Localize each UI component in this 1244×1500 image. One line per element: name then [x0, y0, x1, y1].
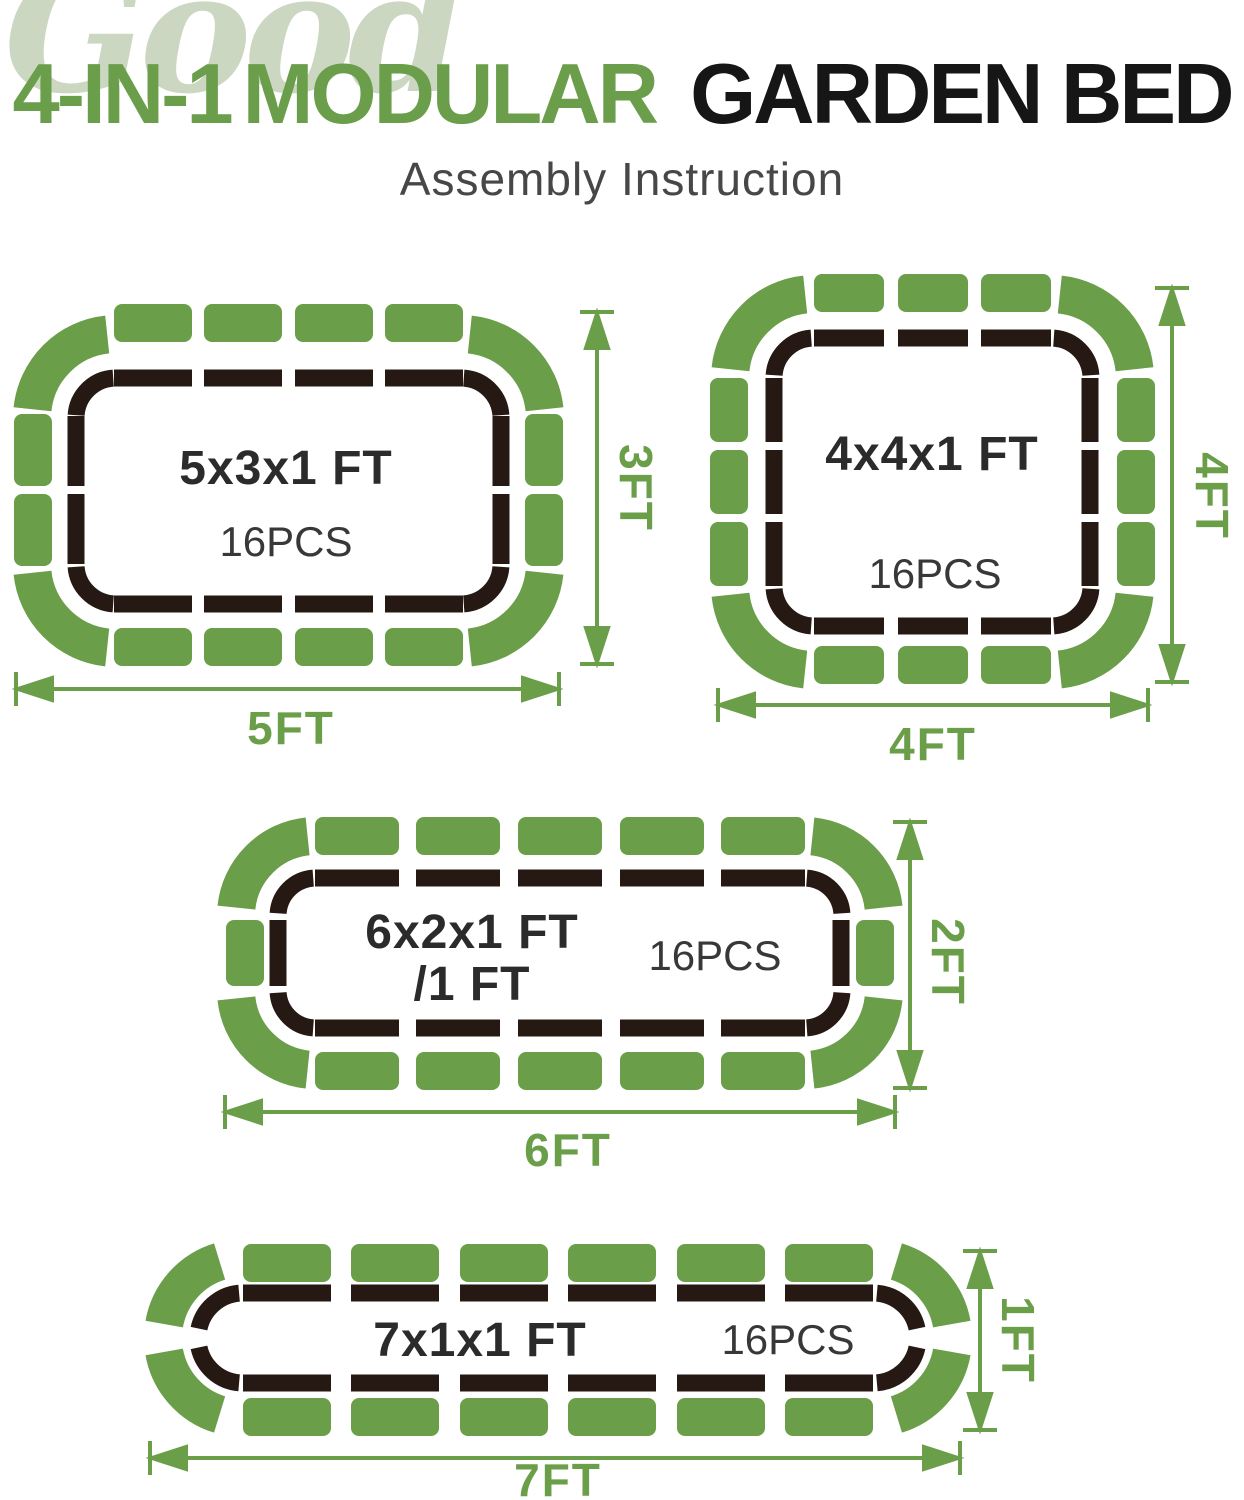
height-dimension-arrow	[893, 822, 927, 1088]
pieces-count: 16PCS	[868, 550, 1001, 597]
arrowhead-up	[969, 1253, 991, 1287]
corner-panel	[33, 573, 108, 648]
corner-panel	[812, 998, 883, 1069]
title-modular: MODULAR	[243, 48, 656, 142]
arrowhead-up	[1161, 290, 1183, 324]
arrowhead-down	[586, 628, 608, 662]
corner-panel	[236, 998, 307, 1069]
panel-bottom	[114, 628, 192, 666]
panel-top	[351, 1244, 439, 1282]
size-label: 5x3x1 FT	[179, 442, 392, 495]
panel-left	[710, 522, 748, 586]
diagram-bed-5x3: 5x3x1 FT 16PCS 3FT 5FT	[8, 298, 668, 758]
panel-left	[14, 494, 52, 566]
panel-bottom	[518, 1052, 602, 1090]
panel-bottom	[204, 628, 282, 666]
panel-top	[677, 1244, 765, 1282]
arrowhead-down	[969, 1394, 991, 1428]
pieces-count: 16PCS	[648, 932, 781, 979]
panel-bottom	[315, 1052, 399, 1090]
panel-right	[856, 920, 894, 986]
corner-panel	[470, 573, 545, 648]
height-dimension-arrow	[963, 1251, 997, 1430]
corner-panel	[812, 836, 883, 907]
assembly-instruction-sheet: Good 4-IN-1 MODULAR GARDEN BED Assembly …	[0, 0, 1244, 1500]
arrowhead-left	[720, 694, 754, 716]
diagram-bed-4x4: 4x4x1 FT 16PCS 4FT 4FT	[690, 268, 1244, 770]
panel-top	[568, 1244, 656, 1282]
height-dimension-label: 3FT	[610, 444, 662, 532]
panel-bottom	[243, 1398, 331, 1436]
panel-top	[721, 817, 805, 855]
bed-diagram-7x1: 7x1x1 FT 16PCS 1FT 7FT	[128, 1238, 1138, 1500]
panel-bottom	[568, 1398, 656, 1436]
size-label-line2: /1 FT	[413, 958, 530, 1011]
panel-top	[620, 817, 704, 855]
panel-right	[525, 414, 563, 486]
panel-top	[385, 304, 463, 342]
panel-top	[416, 817, 500, 855]
arrowhead-down	[899, 1052, 921, 1086]
diagram-bed-6x2: 6x2x1 FT /1 FT 16PCS 2FT 6FT	[210, 812, 1010, 1180]
corner-panel	[1060, 595, 1135, 670]
arrowhead-left	[18, 678, 52, 700]
size-label: 7x1x1 FT	[373, 1314, 586, 1367]
corner-panel	[470, 335, 545, 410]
panel-bottom	[785, 1398, 873, 1436]
diagram-bed-7x1: 7x1x1 FT 16PCS 1FT 7FT	[128, 1238, 1138, 1500]
height-dimension-label: 1FT	[992, 1296, 1044, 1384]
panel-bottom	[981, 646, 1051, 684]
arrowhead-right	[924, 1447, 958, 1469]
size-label: 6x2x1 FT	[365, 906, 578, 959]
panel-left	[14, 414, 52, 486]
panel-bottom	[351, 1398, 439, 1436]
panel-left	[710, 378, 748, 442]
size-label: 4x4x1 FT	[825, 428, 1038, 481]
bed-diagram-5x3: 5x3x1 FT 16PCS 3FT 5FT	[8, 298, 668, 758]
arrowhead-down	[1161, 646, 1183, 680]
title-4-in-1: 4-IN-1	[13, 48, 231, 142]
panel-top	[518, 817, 602, 855]
panel-top	[204, 304, 282, 342]
arrowhead-left	[152, 1447, 186, 1469]
panel-top	[460, 1244, 548, 1282]
width-dimension-label: 6FT	[524, 1124, 612, 1176]
panel-right	[1117, 522, 1155, 586]
height-dimension-arrow	[1155, 288, 1189, 682]
width-dimension-label: 7FT	[514, 1454, 602, 1500]
subtitle: Assembly Instruction	[0, 152, 1244, 206]
panel-bottom	[620, 1052, 704, 1090]
height-dimension-label: 2FT	[922, 918, 974, 1006]
panel-bottom	[416, 1052, 500, 1090]
corner-panel	[1060, 295, 1135, 370]
width-dimension-arrow	[16, 672, 559, 706]
panel-right	[525, 494, 563, 566]
arrowhead-right	[523, 678, 557, 700]
page-title: 4-IN-1 MODULAR GARDEN BED	[0, 48, 1244, 142]
panel-bottom	[814, 646, 884, 684]
height-dimension-arrow	[580, 312, 614, 664]
corner-panel	[236, 836, 307, 907]
width-dimension-label: 4FT	[889, 718, 977, 770]
width-dimension-label: 5FT	[247, 702, 335, 754]
panel-right	[1117, 450, 1155, 514]
panel-bottom	[385, 628, 463, 666]
arrowhead-left	[227, 1101, 261, 1123]
panel-top	[898, 274, 968, 312]
panel-top	[315, 817, 399, 855]
arrowhead-up	[899, 824, 921, 858]
panel-right	[1117, 378, 1155, 442]
panel-bottom	[677, 1398, 765, 1436]
pieces-count: 16PCS	[721, 1316, 854, 1363]
panel-left	[226, 920, 264, 986]
corner-panel	[731, 595, 806, 670]
width-dimension-arrow	[718, 688, 1148, 722]
panel-top	[243, 1244, 331, 1282]
panel-bottom	[721, 1052, 805, 1090]
corner-panel	[33, 335, 108, 410]
bed-diagram-6x2: 6x2x1 FT /1 FT 16PCS 2FT 6FT	[210, 812, 1010, 1180]
panel-top	[295, 304, 373, 342]
panel-top	[785, 1244, 873, 1282]
title-garden-bed: GARDEN BED	[690, 48, 1231, 142]
panel-top	[981, 274, 1051, 312]
panel-left	[710, 450, 748, 514]
arrowhead-right	[859, 1101, 893, 1123]
corner-panel	[731, 295, 806, 370]
panel-top	[114, 304, 192, 342]
panel-bottom	[295, 628, 373, 666]
bed-diagram-4x4: 4x4x1 FT 16PCS 4FT 4FT	[690, 268, 1244, 770]
panel-top	[814, 274, 884, 312]
panel-bottom	[460, 1398, 548, 1436]
height-dimension-label: 4FT	[1186, 452, 1238, 540]
pieces-count: 16PCS	[219, 518, 352, 565]
panel-bottom	[898, 646, 968, 684]
arrowhead-up	[586, 314, 608, 348]
arrowhead-right	[1112, 694, 1146, 716]
